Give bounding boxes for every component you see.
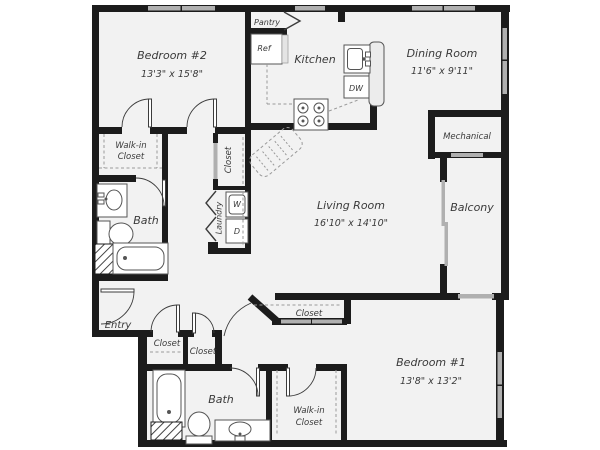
bathtub (153, 370, 185, 427)
mechanical-label: Mechanical (443, 132, 491, 142)
dw-label: DW (349, 84, 364, 93)
toilet (186, 412, 212, 444)
kitchen-label: Kitchen (294, 53, 335, 66)
bedroom1-label: Bedroom #1 (396, 356, 466, 369)
washer-label: W (233, 200, 242, 209)
hall-closet-label: Closet (296, 309, 323, 319)
closet-slider-panel (281, 320, 311, 324)
balcony-slider-panel (442, 180, 446, 226)
entry-label: Entry (105, 320, 133, 331)
walkin-upper-label: Walk-in (115, 141, 146, 151)
living-dims: 16'10" x 14'10" (314, 218, 388, 229)
closet-pocket-door (214, 143, 218, 179)
walkin-lower-label: Walk-in (293, 406, 324, 416)
dining-label: Dining Room (407, 47, 478, 60)
pantry-label: Pantry (254, 18, 280, 27)
mid-closet-label: Closet (224, 146, 234, 173)
floor-plan-image: Bedroom #2 13'3" x 15'8" Kitchen Dining … (0, 0, 600, 450)
living-label: Living Room (317, 199, 385, 212)
sink-vanity (215, 420, 270, 441)
balcony-slider-panel (445, 222, 449, 266)
laundry-label: Laundry (215, 201, 224, 234)
bath-lower-label: Bath (208, 393, 234, 406)
ref-label: Ref (257, 44, 271, 53)
bath-upper-label: Bath (133, 214, 159, 227)
kitchen-sink (344, 45, 371, 73)
shower-pan (151, 422, 182, 440)
entry-closet1-label: Closet (154, 339, 181, 349)
dryer-label: D (234, 227, 240, 236)
floor-plan-svg: Bedroom #2 13'3" x 15'8" Kitchen Dining … (0, 0, 600, 450)
closet-slider-panel (312, 320, 342, 324)
shower-pan (95, 244, 113, 274)
bedroom1-dims: 13'8" x 13'2" (400, 376, 462, 387)
bedroom2-label: Bedroom #2 (137, 49, 207, 62)
bedroom2-dims: 13'3" x 15'8" (141, 69, 203, 80)
range-stove (294, 99, 328, 130)
entry-closet2-label: Closet (190, 347, 217, 357)
mechanical-door (451, 153, 483, 157)
kitchen-counter (369, 42, 384, 106)
balcony-label: Balcony (450, 201, 494, 214)
dining-dims: 11'6" x 9'11" (411, 66, 473, 77)
walkin-upper-label: Closet (118, 152, 145, 162)
bathtub (113, 243, 168, 274)
sink-vanity (97, 184, 127, 217)
walkin-lower-label: Closet (296, 418, 323, 428)
